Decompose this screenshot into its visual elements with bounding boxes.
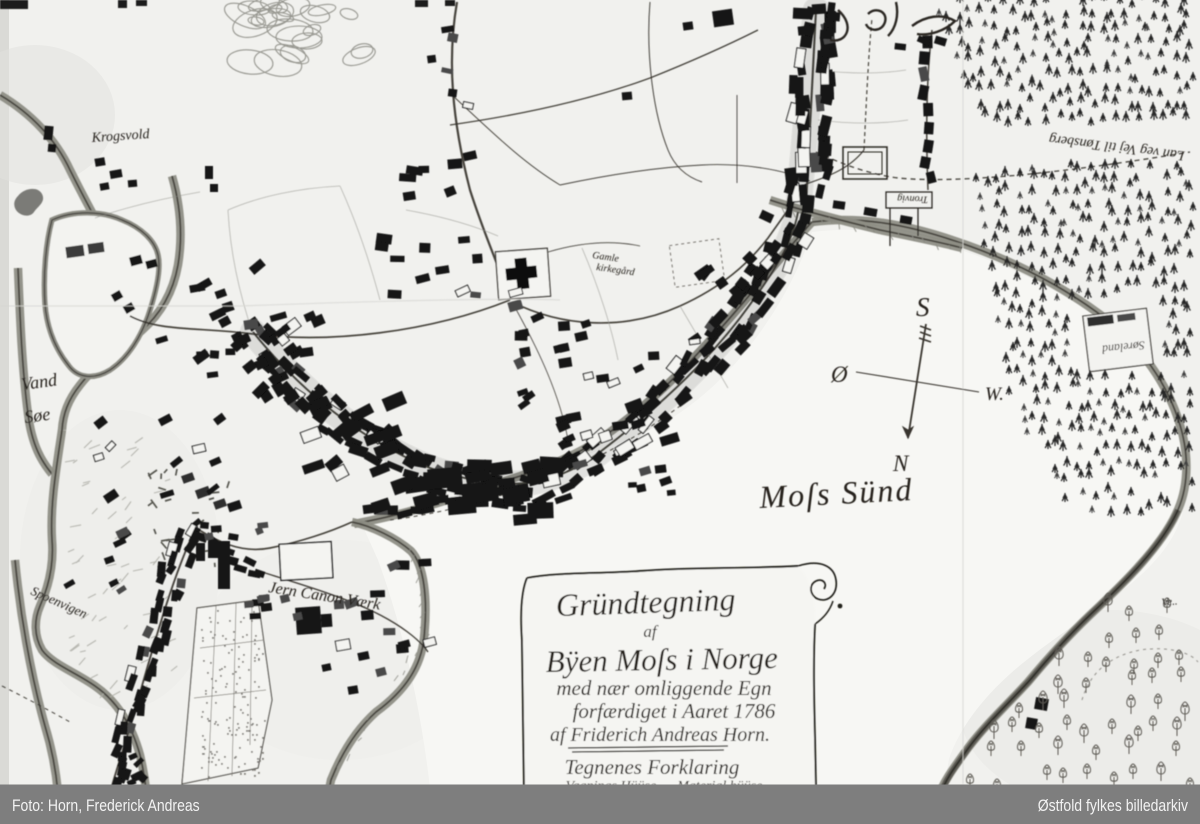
svg-text:af Friderich Andreas Horn.: af Friderich Andreas Horn.: [550, 724, 770, 746]
svg-text:Østfold fylkes billedarkiv: Østfold fylkes billedarkiv: [1038, 797, 1189, 815]
svg-text:S: S: [916, 292, 930, 322]
svg-text:Gründtegning: Gründtegning: [555, 581, 736, 623]
svg-text:med nær omliggende Egn: med nær omliggende Egn: [556, 676, 771, 700]
svg-text:Ø: Ø: [830, 362, 849, 387]
svg-text:Foto: Horn, Frederick Andreas: Foto: Horn, Frederick Andreas: [12, 797, 200, 815]
svg-text:Tegnenes Forklaring: Tegnenes Forklaring: [565, 755, 740, 779]
svg-text:forfærdiget i Aaret 1786: forfærdiget i Aaret 1786: [573, 699, 776, 723]
svg-text:Bÿen Moſs i Norge: Bÿen Moſs i Norge: [545, 640, 778, 679]
svg-text:af: af: [643, 622, 659, 641]
svg-text:W.: W.: [985, 384, 1004, 405]
svg-text:Ve..: Ve..: [1161, 595, 1178, 609]
svg-text:Tronvig: Tronvig: [897, 193, 928, 205]
svg-text:Søe: Søe: [23, 404, 52, 427]
